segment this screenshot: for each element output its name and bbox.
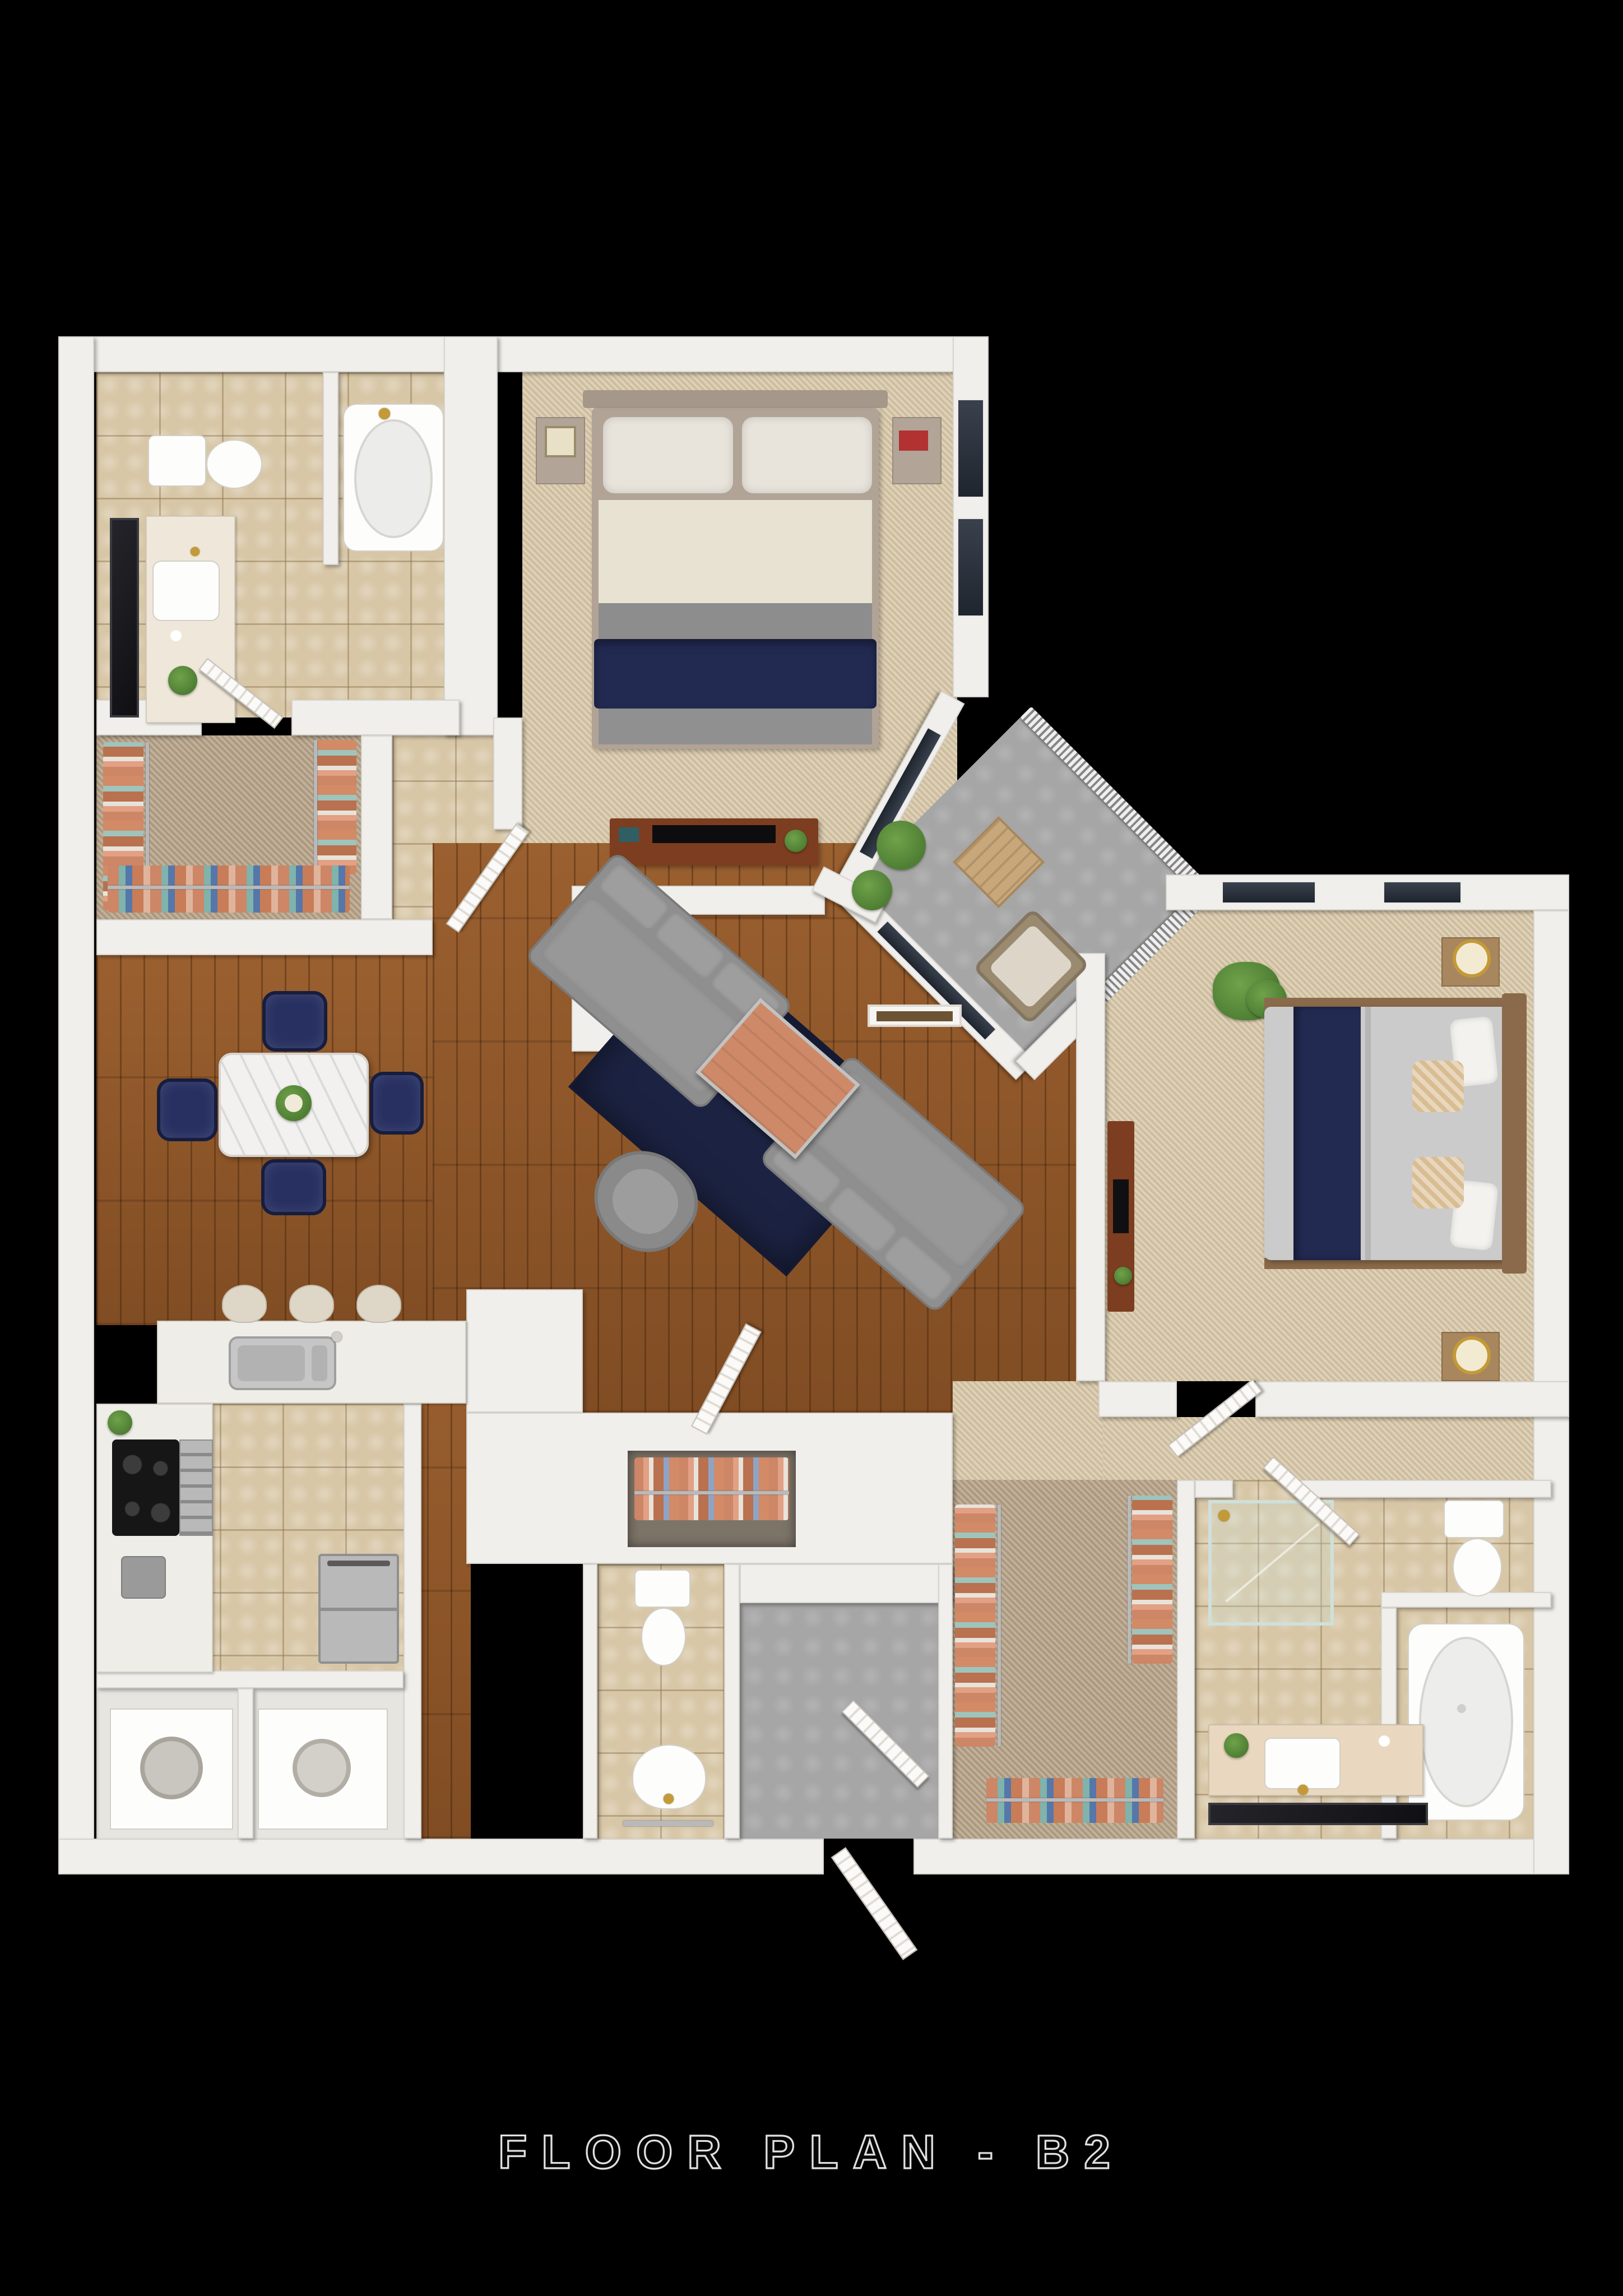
- dining-chair-right: [370, 1072, 424, 1135]
- wall-bedroom2-bottom-a: [1098, 1381, 1177, 1417]
- closet2-rod-right-icon: [1128, 1496, 1131, 1664]
- floor-plan-title: FLOOR PLAN - B2: [0, 2126, 1623, 2179]
- bedroom1-tv-icon: [652, 825, 776, 843]
- bed2-accent-pillow-top: [1412, 1061, 1464, 1112]
- toilet2-bowl: [641, 1608, 686, 1666]
- vanity1-sink: [152, 561, 220, 621]
- wall-left: [58, 336, 94, 1874]
- washer-drum-icon: [140, 1737, 203, 1799]
- bar-stool-1: [222, 1285, 267, 1323]
- nightstand1-right: [892, 417, 942, 484]
- bed1-pillow-left: [603, 417, 733, 493]
- wall-bath-top-a: [1195, 1480, 1233, 1498]
- master-vanity-mirror-icon: [1208, 1803, 1428, 1825]
- shower: [1208, 1500, 1334, 1626]
- toilet3-bowl: [1453, 1538, 1502, 1596]
- balcony-shrub-icon: [877, 821, 926, 870]
- wall-bedroom1-right: [953, 336, 989, 697]
- bed2-accent-pillow-bottom: [1412, 1157, 1464, 1209]
- closet2-clothes-right: [1132, 1496, 1172, 1664]
- floor-plan: FLOOR PLAN - B2: [0, 0, 1623, 2296]
- toilet1-bowl: [206, 439, 262, 489]
- wall-bedroom2-bottom-b: [1255, 1381, 1569, 1417]
- dining-flowers-icon: [285, 1094, 303, 1112]
- bed1-navy-throw: [594, 639, 877, 709]
- refrigerator-handles-icon: [327, 1561, 390, 1566]
- shower-fixture-icon: [1218, 1510, 1230, 1521]
- master-tub-basin: [1419, 1637, 1513, 1807]
- master-bath-bottle-icon: [1379, 1735, 1390, 1747]
- bar-stool-2: [289, 1285, 334, 1323]
- bedroom1-window2-icon: [957, 518, 984, 617]
- pedestal-sink-faucet-icon: [664, 1794, 674, 1804]
- vanity1-faucet-icon: [191, 547, 200, 556]
- closet1-clothes-bottom: [108, 865, 350, 913]
- console-table: [868, 1004, 962, 1027]
- bed1-headboard: [583, 390, 888, 408]
- wall-powder-left: [583, 1564, 597, 1839]
- console-glass-icon: [877, 1011, 953, 1021]
- armchair-cushion: [601, 1158, 689, 1246]
- bathtub1-basin: [354, 419, 433, 538]
- dining-chair-bottom: [261, 1159, 326, 1215]
- toilet2-tank: [634, 1570, 690, 1608]
- washer: [110, 1709, 233, 1830]
- kitchen-sink-basin: [238, 1345, 305, 1381]
- master-bath-plant-icon: [1224, 1733, 1249, 1758]
- powder-towel-bar-icon: [623, 1821, 713, 1826]
- bedroom2-monitor-icon: [1113, 1179, 1129, 1233]
- wall-bottom-left: [58, 1839, 824, 1874]
- wall-bath-top-b: [1300, 1480, 1551, 1498]
- wall-bath1-bedroom1: [444, 336, 498, 735]
- bedroom2-desk-plant-icon: [1114, 1267, 1132, 1285]
- master-vanity-faucet-icon: [1298, 1785, 1308, 1795]
- bedroom1-deco-icon: [619, 827, 639, 842]
- coat-closet-clothes: [634, 1457, 789, 1520]
- coffee-machine-icon: [121, 1556, 166, 1599]
- toilet1-tank: [148, 435, 206, 487]
- dining-chair-left: [157, 1078, 217, 1141]
- bed1-foot-band: [599, 709, 872, 744]
- storage-room-floor: [740, 1603, 938, 1839]
- bedroom1-plant-icon: [785, 830, 807, 852]
- closet1-rod-right-icon: [314, 740, 317, 874]
- coat-closet-rod-icon: [634, 1491, 789, 1494]
- wall-storage-top: [740, 1564, 953, 1603]
- dining-chair-top: [262, 991, 327, 1052]
- bed1-mattress-band: [599, 603, 872, 641]
- kitchen-sink-basin2: [312, 1345, 327, 1381]
- bedroom2-window2-icon: [1383, 881, 1462, 904]
- render-canvas: FLOOR PLAN - B2: [0, 0, 1623, 2296]
- nightstand1-magazine-icon: [899, 430, 928, 451]
- master-tub-drain-icon: [1457, 1704, 1466, 1713]
- coat-closet-nook: [628, 1451, 796, 1547]
- toilet3-tank: [1444, 1500, 1504, 1538]
- closet1-rod-bottom-icon: [108, 886, 350, 889]
- bath1-plant-icon: [168, 666, 197, 695]
- lamp2-bottom-icon: [1453, 1336, 1491, 1374]
- wall-bath1-bottom-b: [291, 700, 460, 735]
- shower-glass-seam-icon: [1225, 1523, 1319, 1603]
- wall-laundry-top: [96, 1670, 404, 1688]
- bar-stool-3: [356, 1285, 401, 1323]
- bedroom2-window-icon: [1222, 881, 1316, 904]
- wall-tub-nook-h: [1381, 1592, 1551, 1608]
- oven-front: [179, 1439, 213, 1536]
- kitchen-faucet-icon: [332, 1332, 342, 1342]
- entry-door: [831, 1847, 918, 1960]
- closet2-clothes-left: [955, 1505, 995, 1747]
- bed1-sheet: [599, 500, 872, 603]
- bedroom1-window-icon: [957, 399, 984, 498]
- bed2-navy-runner: [1293, 1007, 1361, 1260]
- bath1-bottle-icon: [170, 630, 182, 641]
- kitchen-plant-icon: [108, 1410, 132, 1435]
- wall-bar-return-block: [466, 1289, 583, 1413]
- wall-laundry-divider: [238, 1688, 253, 1839]
- closet1-clothes-right: [316, 740, 356, 874]
- wall-kitchen-right: [404, 1404, 421, 1839]
- dryer: [258, 1709, 388, 1830]
- bed1-pillow-right: [742, 417, 872, 493]
- lamp1-left-icon: [545, 426, 576, 457]
- wall-powder-right: [724, 1564, 740, 1839]
- wall-closet2-bath: [1177, 1480, 1195, 1839]
- wall-bottom-right: [913, 1839, 1569, 1874]
- lamp2-top-icon: [1453, 939, 1491, 978]
- wall-bath1-tub-divider: [323, 372, 338, 565]
- refrigerator-split-icon: [321, 1608, 397, 1611]
- wall-top: [58, 336, 989, 372]
- bathtub1-faucet-icon: [379, 408, 390, 419]
- master-vanity-sink: [1264, 1738, 1341, 1789]
- wall-bedroom2-left: [1076, 953, 1105, 1381]
- dryer-drum-icon: [293, 1739, 351, 1797]
- vanity1-mirror-icon: [110, 518, 139, 717]
- wall-closet1-right: [361, 735, 392, 919]
- wall-closet1-bottom: [96, 919, 433, 955]
- cooktop: [112, 1439, 179, 1536]
- hall2-floor-a: [953, 1381, 1103, 1480]
- wall-bedroom1-left: [493, 717, 522, 830]
- balcony-shrub2-icon: [852, 870, 892, 910]
- closet2-rod-bottom-icon: [986, 1798, 1163, 1802]
- bed2-headboard: [1502, 993, 1527, 1274]
- bed2-fold-line: [1365, 1007, 1371, 1260]
- refrigerator: [318, 1554, 399, 1664]
- closet2-rod-left-icon: [998, 1505, 1001, 1747]
- wall-storage-right: [938, 1564, 953, 1839]
